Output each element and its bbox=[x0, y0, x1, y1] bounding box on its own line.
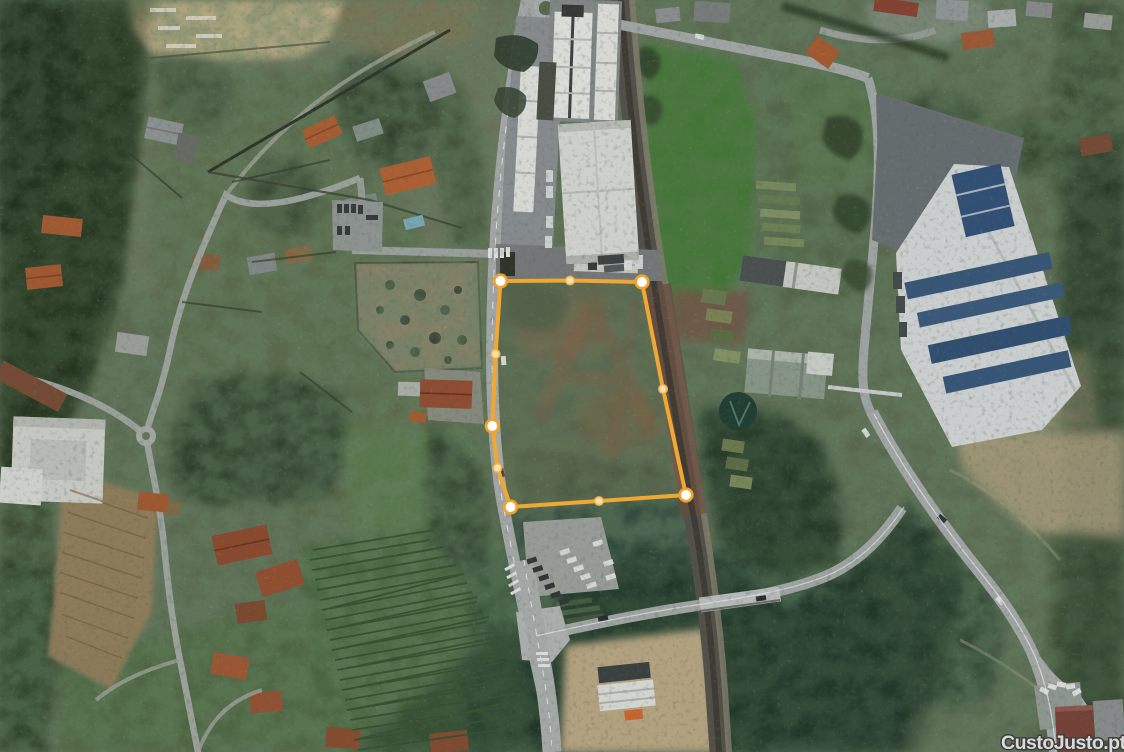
svg-text:CustoJusto.pt: CustoJusto.pt bbox=[1001, 732, 1124, 752]
